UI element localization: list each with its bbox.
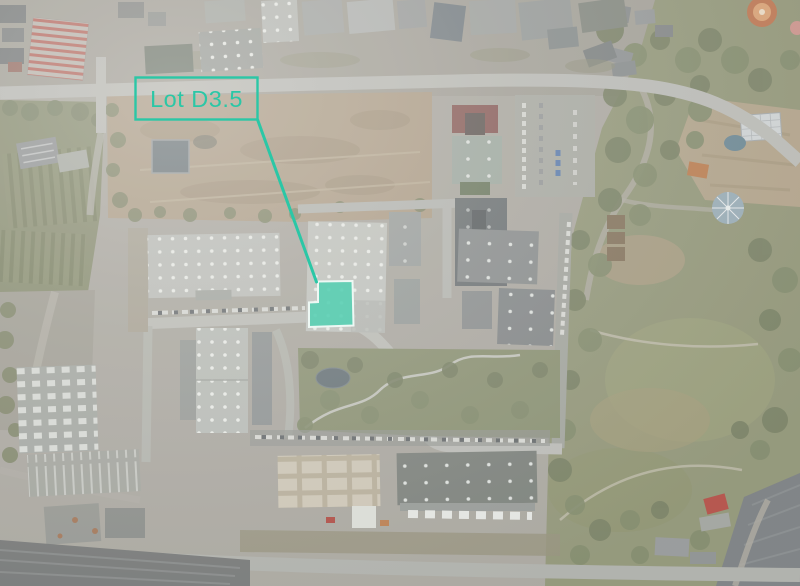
lot-label: Lot D3.5 [150,86,243,112]
atmospheric-haze [0,0,800,586]
aerial-site-map: Lot D3.5 [0,0,800,586]
